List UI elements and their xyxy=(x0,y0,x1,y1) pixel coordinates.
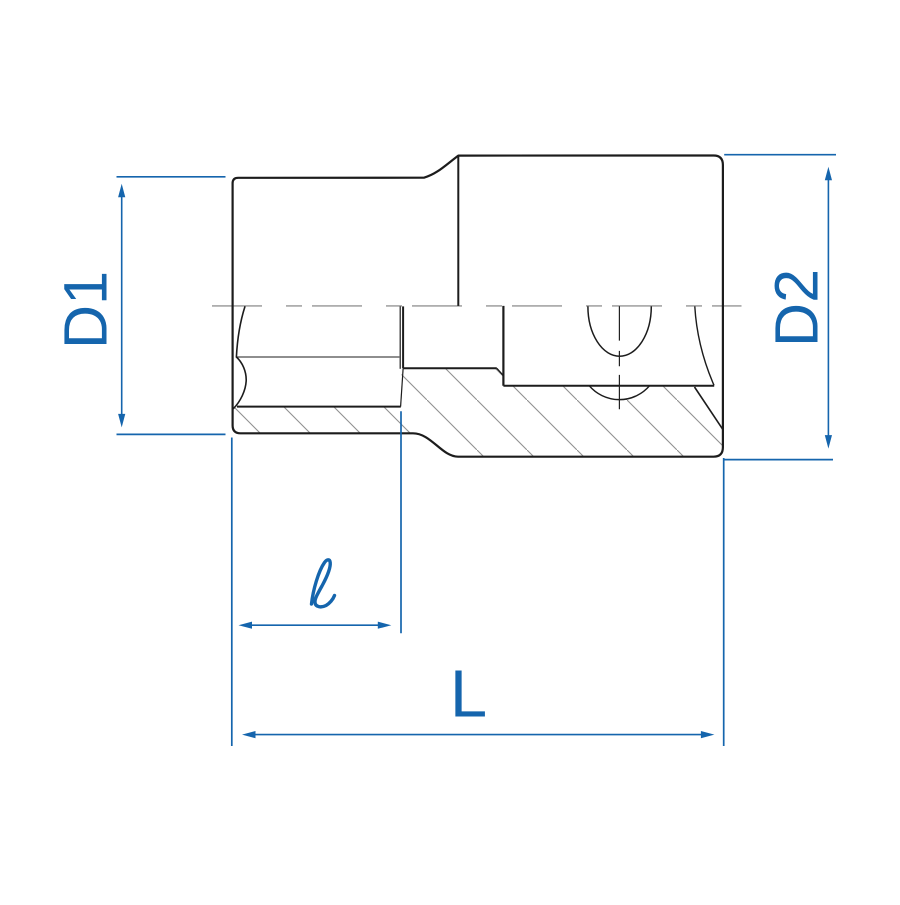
svg-text:D2: D2 xyxy=(763,269,831,347)
svg-text:D1: D1 xyxy=(52,271,120,349)
svg-text:L: L xyxy=(450,657,487,732)
